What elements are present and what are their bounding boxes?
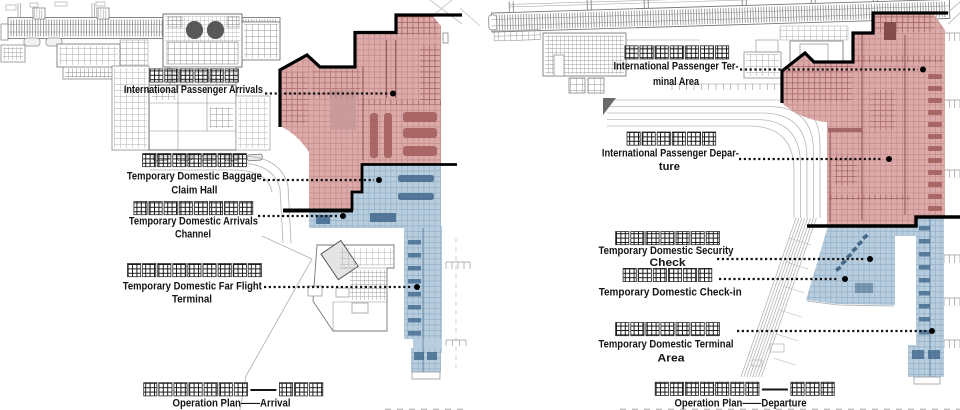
svg-text:Terminal: Terminal bbox=[172, 294, 212, 306]
svg-text:Channel: Channel bbox=[175, 229, 211, 241]
svg-text:Temporary Domestic Security: Temporary Domestic Security bbox=[599, 245, 735, 257]
svg-text:ture: ture bbox=[659, 161, 680, 173]
svg-text:Area: Area bbox=[658, 352, 686, 364]
svg-text:Check: Check bbox=[650, 257, 687, 269]
svg-text:Claim Hall: Claim Hall bbox=[171, 184, 217, 196]
svg-text:minal Area: minal Area bbox=[653, 76, 700, 88]
svg-text:Temporary Domestic Far Flight: Temporary Domestic Far Flight bbox=[123, 280, 262, 292]
svg-text:Operation Plan——Departure: Operation Plan——Departure bbox=[675, 398, 807, 410]
svg-text:Temporary Domestic Terminal: Temporary Domestic Terminal bbox=[599, 338, 734, 350]
svg-text:Temporary Domestic Baggage: Temporary Domestic Baggage bbox=[127, 170, 262, 182]
svg-text:International Passenger Ter-: International Passenger Ter- bbox=[614, 60, 739, 72]
svg-text:International Passenger Depar-: International Passenger Depar- bbox=[602, 147, 739, 159]
svg-text:Temporary Domestic Check-in: Temporary Domestic Check-in bbox=[599, 286, 742, 298]
svg-text:International Passenger Arriva: International Passenger Arrivals bbox=[124, 84, 263, 96]
svg-text:Operation Plan——Arrival: Operation Plan——Arrival bbox=[173, 398, 291, 410]
svg-text:Temporary Domestic Arrivals: Temporary Domestic Arrivals bbox=[129, 215, 258, 227]
